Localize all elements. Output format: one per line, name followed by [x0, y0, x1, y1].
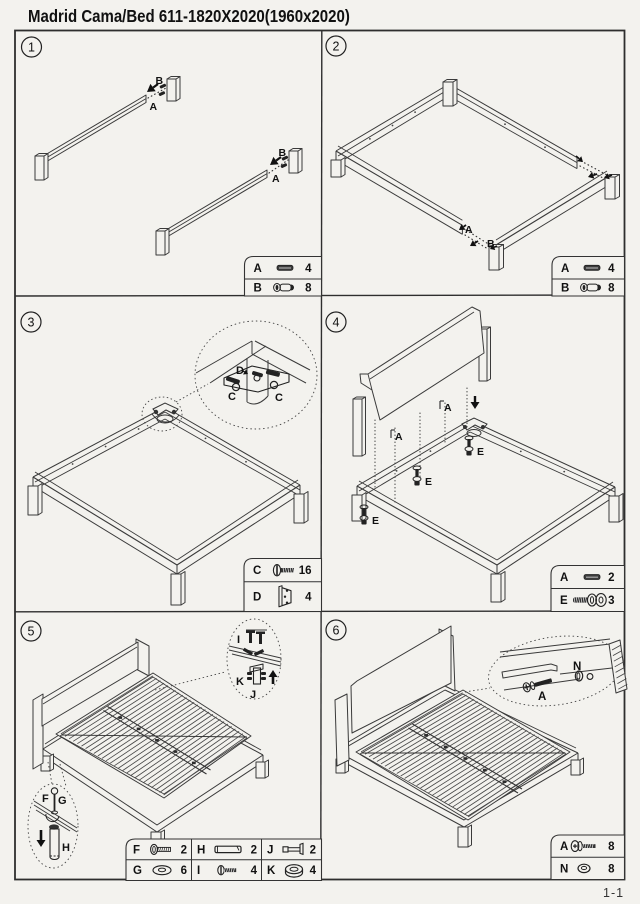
- svg-text:A: A: [561, 263, 569, 275]
- svg-text:4: 4: [608, 263, 615, 275]
- svg-text:B: B: [279, 147, 287, 159]
- svg-text:I: I: [197, 865, 200, 877]
- svg-text:J: J: [267, 844, 273, 856]
- svg-text:6: 6: [333, 624, 340, 638]
- svg-text:D: D: [253, 592, 261, 604]
- svg-text:A: A: [395, 431, 403, 443]
- svg-text:2: 2: [181, 844, 187, 856]
- svg-text:H: H: [197, 844, 205, 856]
- svg-text:4: 4: [333, 316, 340, 330]
- svg-text:E: E: [560, 595, 568, 607]
- svg-text:A: A: [538, 691, 546, 703]
- svg-text:F: F: [42, 793, 49, 805]
- svg-text:F: F: [133, 844, 140, 856]
- svg-text:E: E: [372, 515, 379, 527]
- svg-text:2: 2: [333, 40, 340, 54]
- svg-text:4: 4: [251, 865, 258, 877]
- svg-text:1: 1: [28, 41, 35, 55]
- svg-text:K: K: [236, 676, 244, 688]
- svg-text:A: A: [560, 841, 568, 853]
- svg-text:1-1: 1-1: [603, 886, 624, 900]
- svg-text:D: D: [236, 365, 244, 377]
- svg-text:C: C: [228, 391, 236, 403]
- svg-text:6: 6: [181, 865, 187, 877]
- svg-text:A: A: [254, 263, 262, 275]
- svg-text:K: K: [267, 865, 276, 877]
- svg-text:C: C: [275, 392, 283, 404]
- svg-text:3: 3: [28, 316, 35, 330]
- svg-text:A: A: [272, 173, 280, 185]
- svg-text:G: G: [133, 865, 142, 877]
- svg-text:5: 5: [28, 625, 35, 639]
- svg-text:4: 4: [310, 865, 317, 877]
- svg-text:C: C: [253, 565, 261, 577]
- svg-text:8: 8: [608, 863, 615, 875]
- svg-text:I: I: [237, 634, 240, 646]
- svg-text:8: 8: [608, 283, 615, 295]
- svg-text:H: H: [62, 842, 70, 854]
- svg-text:B: B: [487, 238, 495, 250]
- svg-text:G: G: [58, 795, 67, 807]
- svg-text:E: E: [477, 446, 484, 458]
- svg-text:2: 2: [608, 572, 614, 584]
- svg-text:A: A: [465, 224, 473, 236]
- svg-text:2: 2: [251, 844, 257, 856]
- svg-text:3: 3: [608, 595, 614, 607]
- svg-text:16: 16: [299, 565, 312, 577]
- svg-text:N: N: [560, 863, 568, 875]
- svg-text:8: 8: [608, 841, 615, 853]
- svg-text:J: J: [250, 689, 256, 701]
- svg-text:B: B: [156, 75, 164, 87]
- svg-text:4: 4: [305, 592, 312, 604]
- svg-text:B: B: [561, 283, 569, 295]
- svg-text:A: A: [444, 402, 452, 414]
- svg-text:8: 8: [305, 283, 312, 295]
- svg-text:2: 2: [310, 844, 316, 856]
- svg-text:A: A: [560, 572, 568, 584]
- svg-text:A: A: [150, 101, 158, 113]
- svg-text:4: 4: [305, 263, 312, 275]
- svg-text:E: E: [425, 476, 432, 488]
- svg-text:B: B: [254, 283, 262, 295]
